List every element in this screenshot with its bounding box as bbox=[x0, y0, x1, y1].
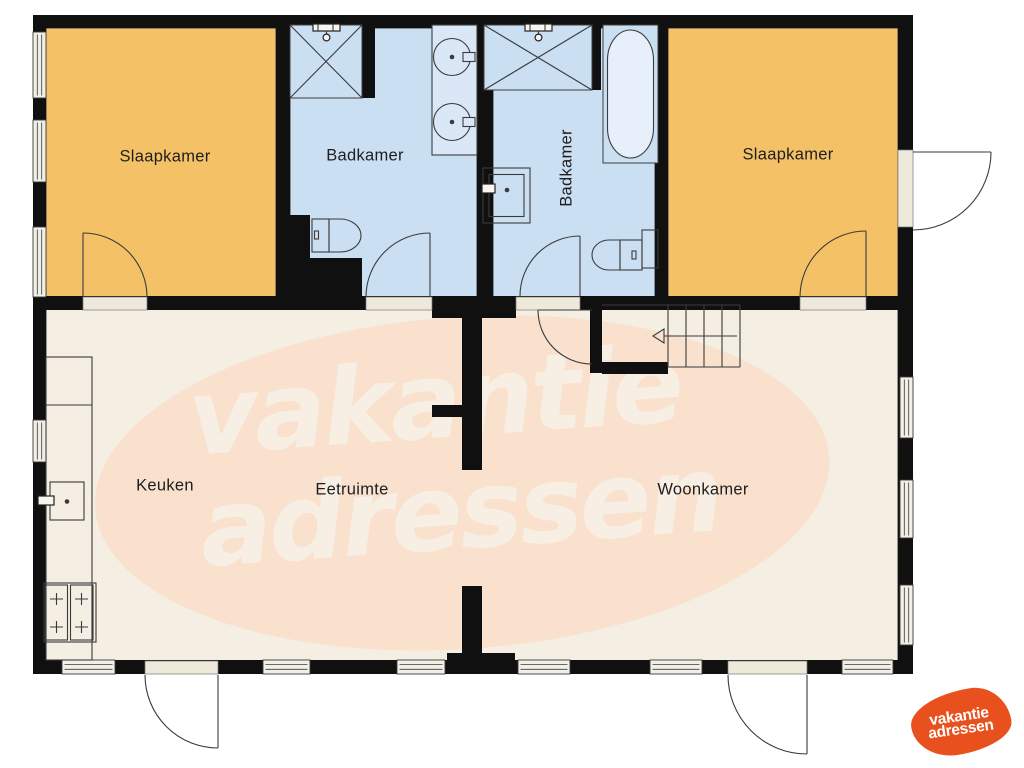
wall-divider-lower bbox=[462, 586, 482, 662]
threshold-bathroom-left bbox=[366, 297, 432, 310]
door-exterior-bedroom-right bbox=[913, 152, 991, 230]
threshold-bathroom-right bbox=[516, 297, 580, 310]
double-sink-left bbox=[432, 25, 477, 155]
threshold-bedroom-right bbox=[800, 297, 866, 310]
window bbox=[62, 660, 115, 674]
window bbox=[33, 420, 46, 462]
window bbox=[650, 660, 702, 674]
wall-shower2-stub bbox=[592, 25, 601, 90]
window bbox=[33, 227, 46, 297]
threshold-bedroom-left bbox=[83, 297, 147, 310]
wall-shower1-stub bbox=[362, 25, 375, 98]
wall-center-pier-bottom bbox=[447, 653, 515, 674]
door-exterior-kitchen bbox=[145, 675, 218, 748]
floor-plan-svg: vakantie adressen bbox=[0, 0, 1024, 768]
window bbox=[842, 660, 893, 674]
logo-text: vakantie adressen bbox=[898, 676, 1022, 768]
window bbox=[33, 32, 46, 98]
window bbox=[900, 377, 913, 438]
wall-stair-stub bbox=[590, 296, 602, 373]
window bbox=[263, 660, 310, 674]
vakantieadressen-logo: vakantie adressen bbox=[903, 684, 1017, 762]
wall-stair-bottom bbox=[602, 362, 668, 374]
floor-plan-page: vakantie adressen bbox=[0, 0, 1024, 768]
window bbox=[33, 120, 46, 182]
bedroom-right-floor bbox=[668, 28, 898, 297]
wall-bedroom1-bathroom1 bbox=[276, 15, 290, 310]
window bbox=[518, 660, 570, 674]
door-exterior-living bbox=[728, 675, 807, 754]
wall-toilet-alcove-h bbox=[310, 258, 362, 300]
window bbox=[900, 585, 913, 645]
threshold-exterior-right bbox=[898, 150, 913, 227]
bathtub bbox=[603, 25, 658, 163]
wall-left bbox=[33, 15, 46, 674]
wall-toilet-alcove-v bbox=[290, 215, 310, 300]
window bbox=[900, 480, 913, 538]
threshold-exterior-kitchen bbox=[145, 661, 218, 674]
bedroom-left-floor bbox=[46, 28, 276, 297]
wall-right bbox=[898, 15, 913, 674]
wall-divider-upper bbox=[462, 296, 482, 470]
wall-divider-stub bbox=[432, 405, 463, 417]
threshold-exterior-living bbox=[728, 661, 807, 674]
window bbox=[397, 660, 445, 674]
